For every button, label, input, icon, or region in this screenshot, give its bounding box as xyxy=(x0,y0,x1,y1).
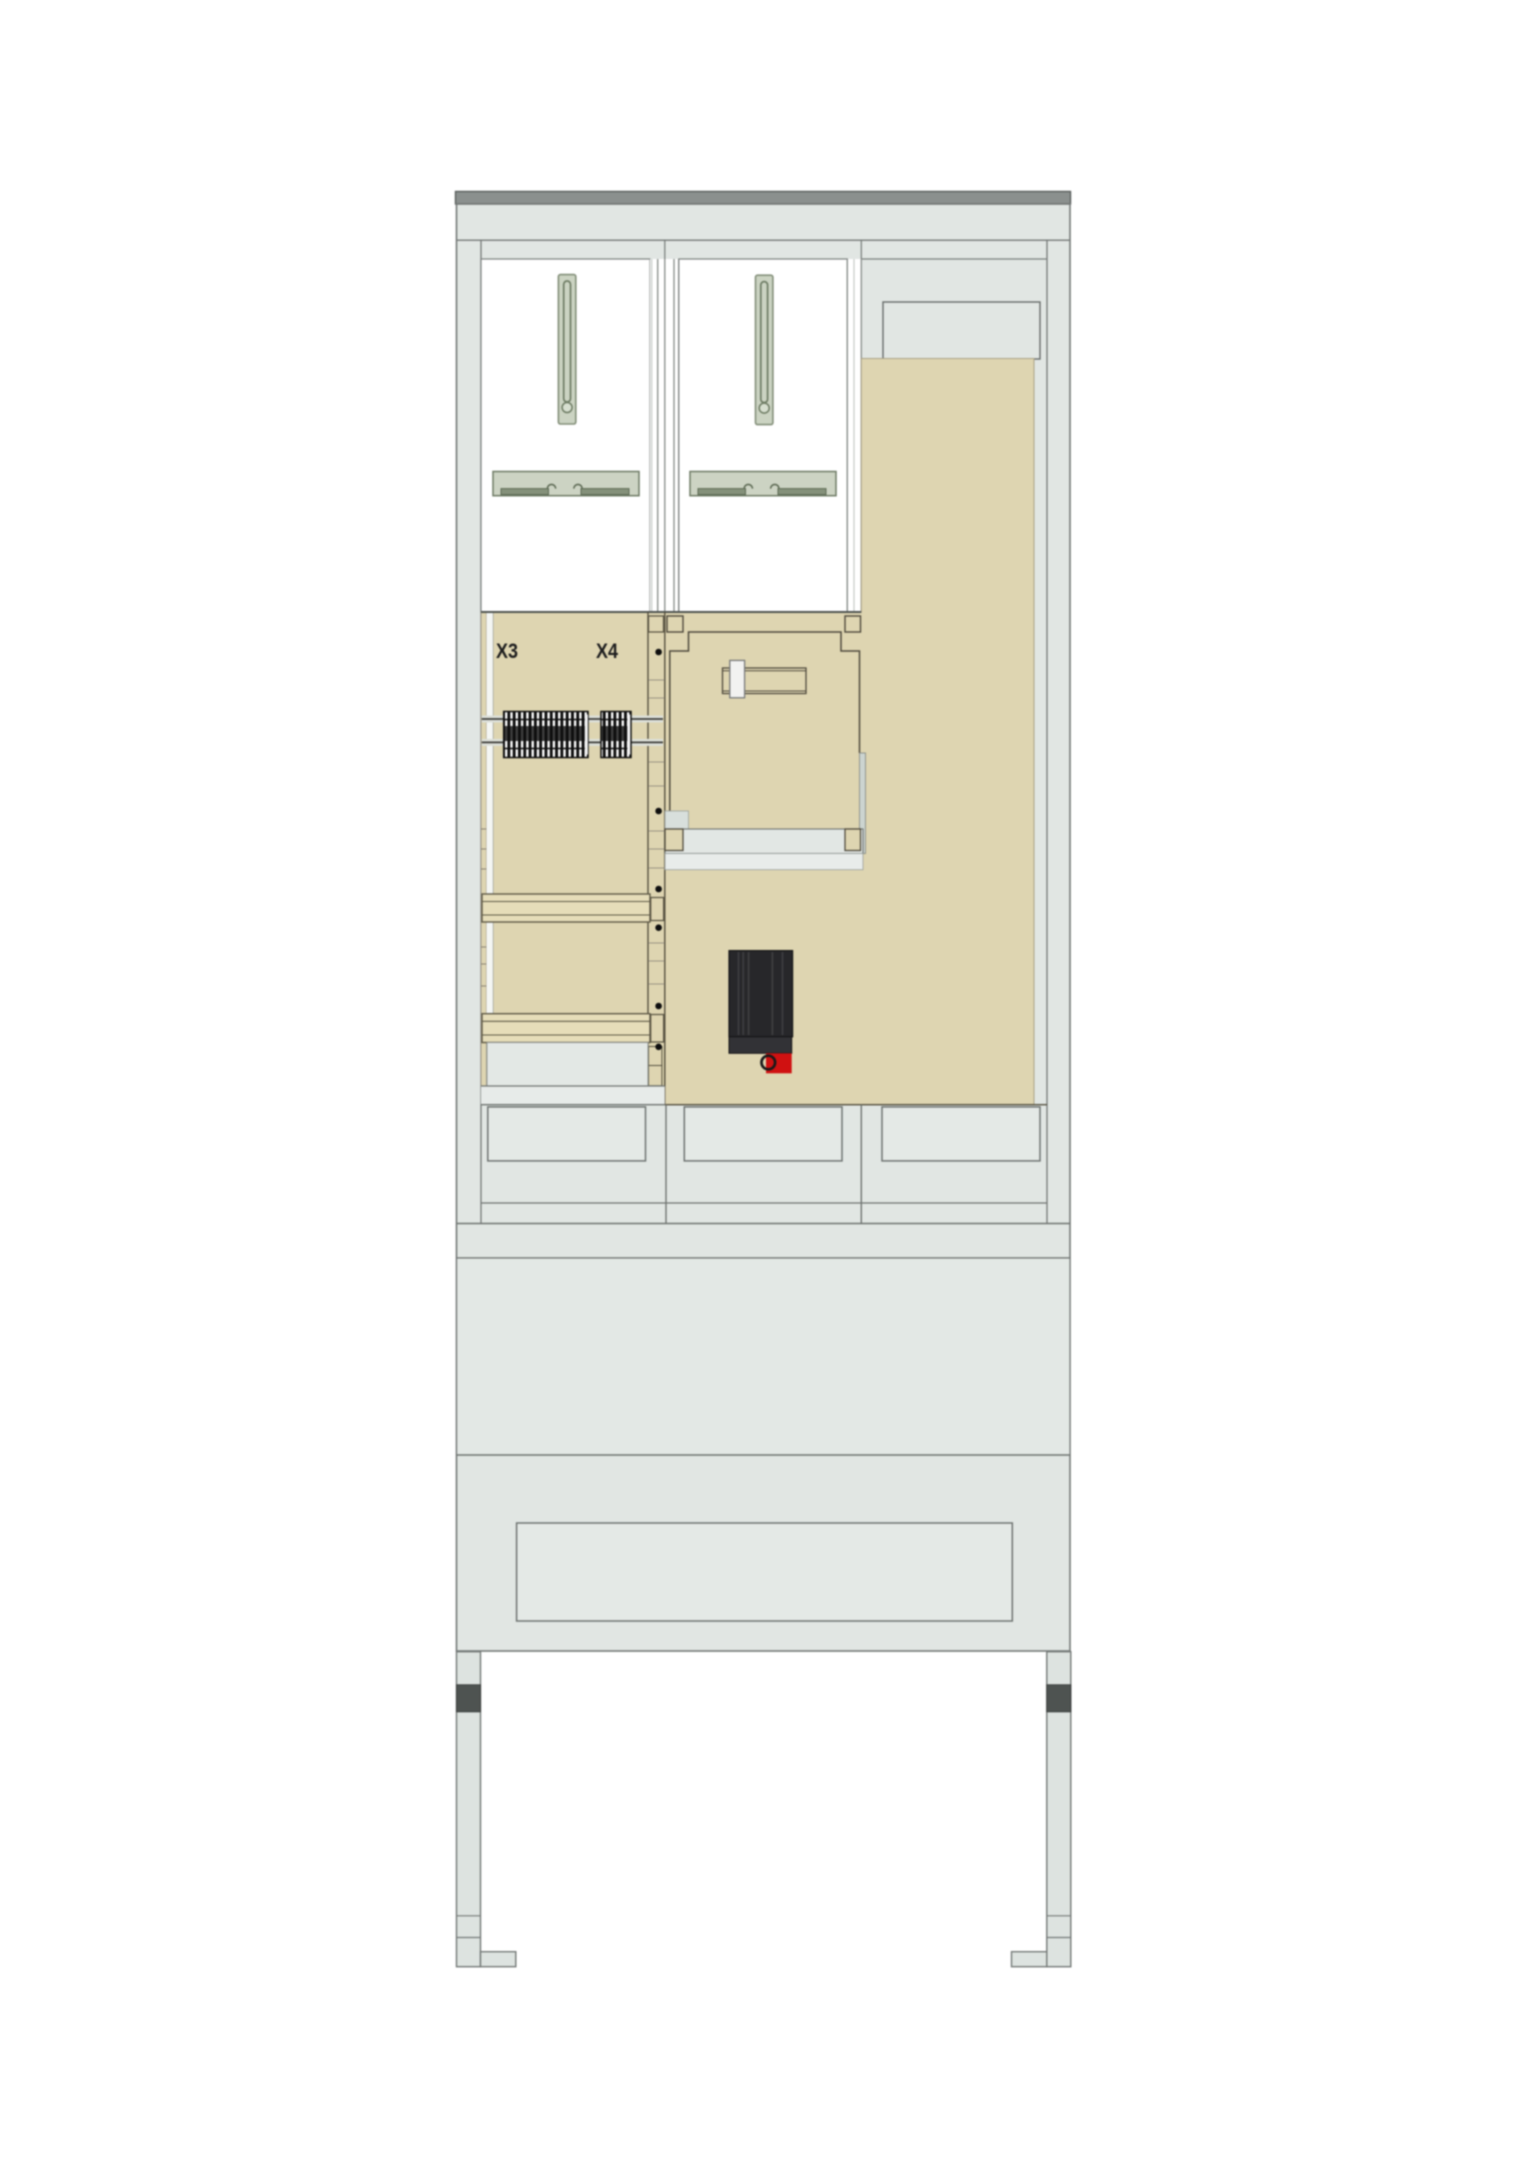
svg-text:X3: X3 xyxy=(496,640,518,663)
svg-text:X4: X4 xyxy=(596,640,618,663)
